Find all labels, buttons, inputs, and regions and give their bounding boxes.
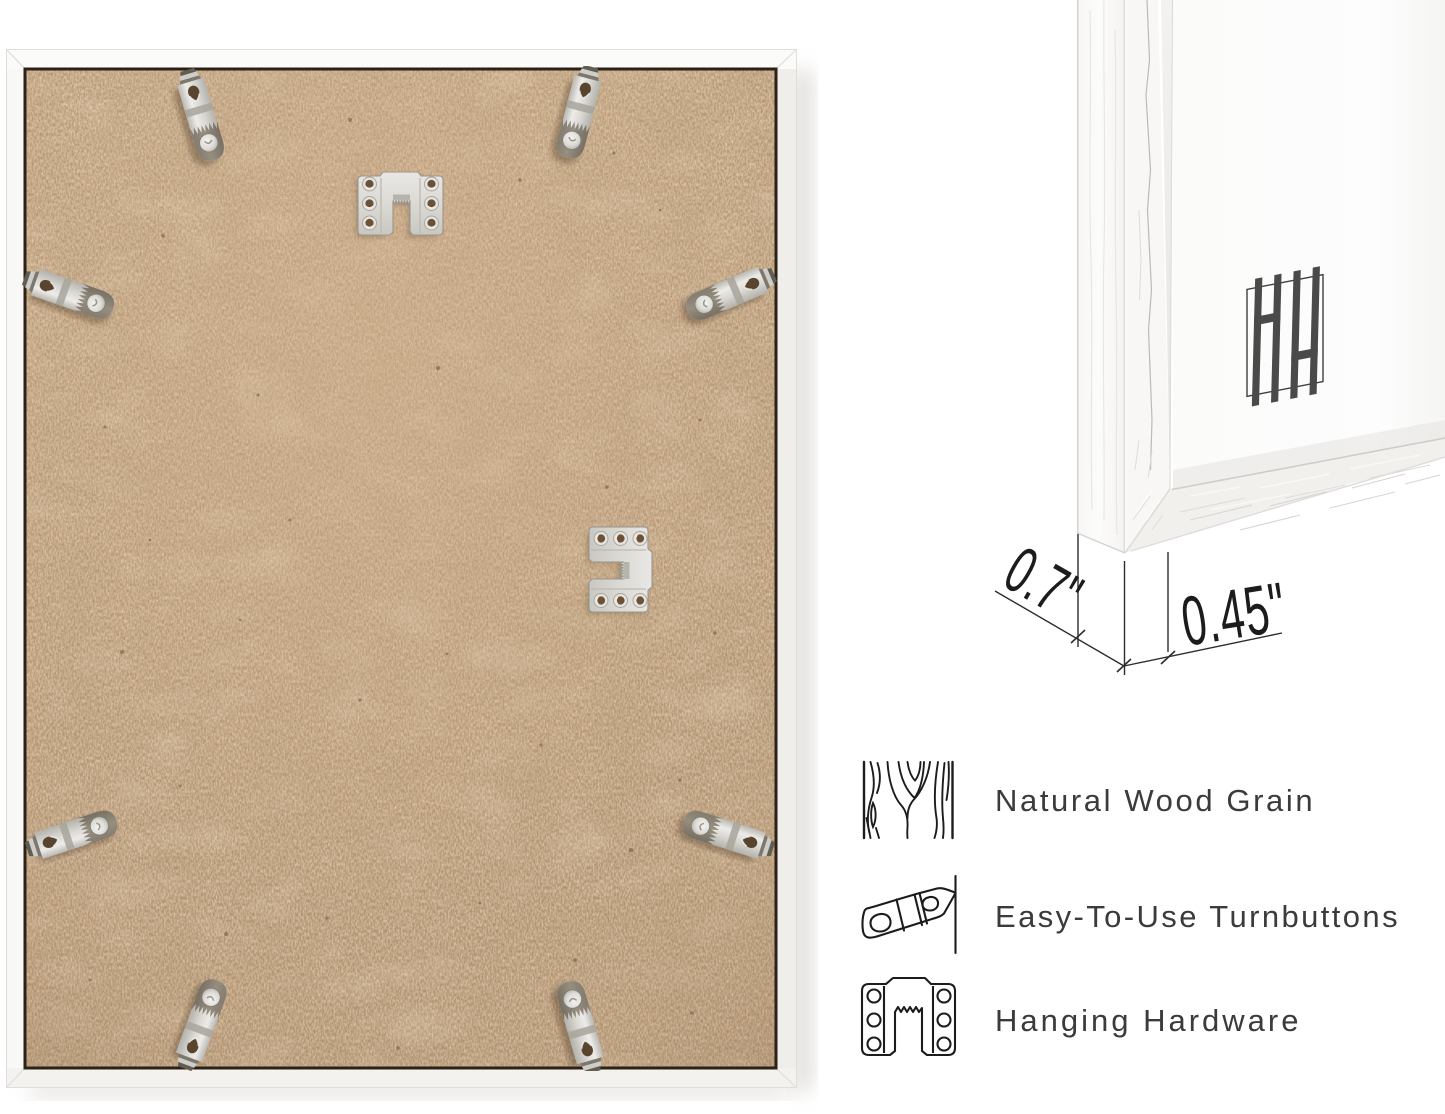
svg-text:Easy-To-Use Turnbuttons: Easy-To-Use Turnbuttons xyxy=(995,899,1400,934)
svg-text:0.45": 0.45" xyxy=(1176,568,1291,662)
svg-text:Natural Wood Grain: Natural Wood Grain xyxy=(995,783,1315,818)
svg-text:Hanging Hardware: Hanging Hardware xyxy=(995,1003,1301,1038)
